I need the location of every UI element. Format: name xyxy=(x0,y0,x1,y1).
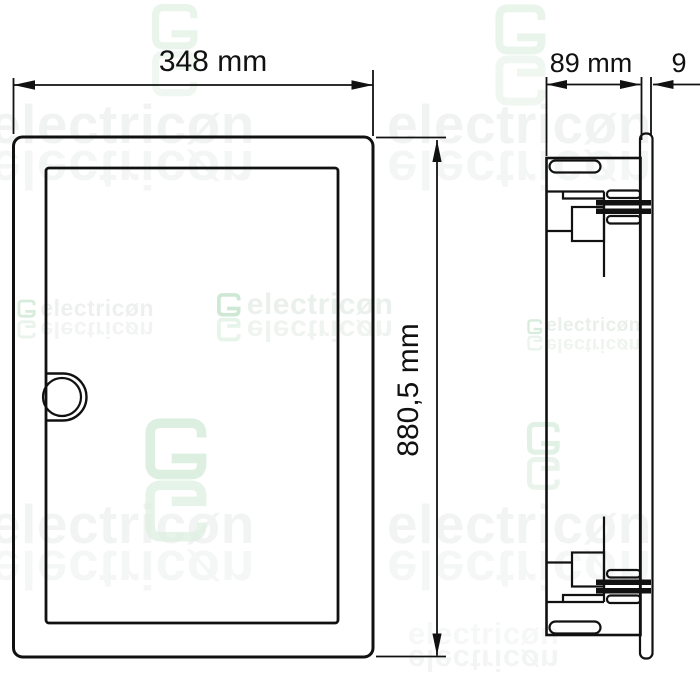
dim-front-width-label: 348 mm xyxy=(159,45,267,78)
dim-front-height-label: 880,5 mm xyxy=(392,323,425,456)
arrow-right-icon xyxy=(352,80,374,89)
drawing-svg: 348 mm 880,5 mm 89 mm 9 xyxy=(0,0,700,700)
side-view xyxy=(547,134,653,659)
mount-bracket-bottom xyxy=(547,517,652,604)
top-slot xyxy=(550,161,601,173)
arrow-left-icon xyxy=(547,80,568,89)
arrow-left-icon xyxy=(653,80,674,89)
arrow-right-icon xyxy=(620,80,641,89)
mount-bracket-top xyxy=(547,191,652,278)
door-handle xyxy=(43,374,86,421)
enclosure-door-outline xyxy=(46,168,338,623)
arrow-up-icon xyxy=(432,140,441,162)
bottom-slot xyxy=(550,622,601,634)
dim-side-offset: 9 xyxy=(653,48,700,89)
dim-side-offset-label: 9 xyxy=(671,48,686,78)
enclosure-frame-outline xyxy=(14,137,374,657)
technical-drawing-canvas: electricøn electricøn electricøn electri… xyxy=(0,0,700,700)
dim-front-width: 348 mm xyxy=(14,45,374,136)
dim-front-height: 880,5 mm xyxy=(376,138,446,657)
dim-side-depth: 89 mm xyxy=(547,48,652,156)
front-view xyxy=(14,137,374,657)
arrow-down-icon xyxy=(432,634,441,656)
dim-side-depth-label: 89 mm xyxy=(550,48,633,78)
arrow-left-icon xyxy=(14,80,36,89)
